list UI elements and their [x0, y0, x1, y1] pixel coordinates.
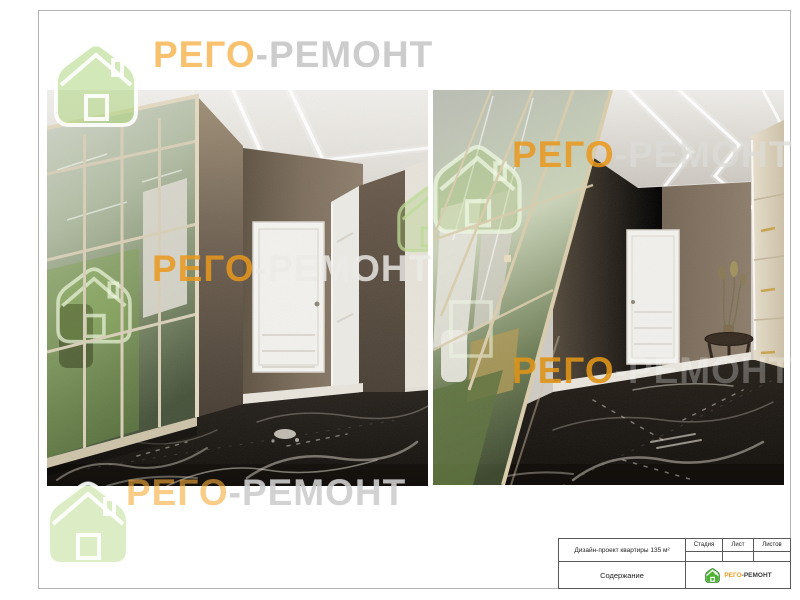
- title-block-sheet-label: Лист: [723, 539, 754, 552]
- title-block-brand-text: РЕГО-РЕМОНТ: [724, 572, 771, 579]
- title-block-brand-cell: РЕГО-РЕМОНТ: [686, 562, 791, 589]
- document-page: РЕГО-РЕМОНТ РЕГО-РЕМОНТ РЕГО-РЕМОНТ РЕГО…: [0, 0, 800, 600]
- title-block-stage-value: [686, 552, 723, 562]
- house-logo-icon: [704, 566, 721, 584]
- title-block: Дизайн-проект квартиры 135 м² Стадия Лис…: [558, 538, 791, 589]
- title-block-stage-label: Стадия: [686, 539, 723, 552]
- title-block-sheets-value: [754, 552, 791, 562]
- render-hallway-view-1: [47, 90, 428, 486]
- render-hallway-view-2: [433, 90, 784, 485]
- title-block-sheet-value: [723, 552, 754, 562]
- title-block-content-label: Содержание: [559, 562, 686, 589]
- title-block-project-name: Дизайн-проект квартиры 135 м²: [559, 539, 686, 562]
- title-block-sheets-label: Листов: [754, 539, 791, 552]
